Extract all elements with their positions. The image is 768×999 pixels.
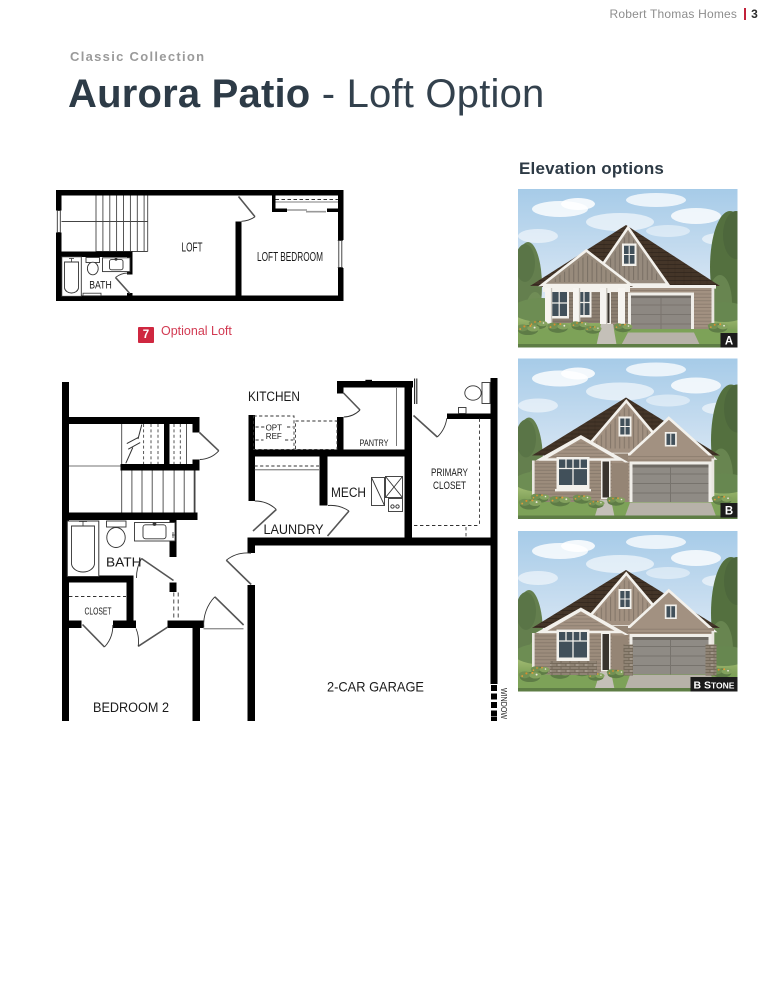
- svg-text:LAUNDRY: LAUNDRY: [264, 522, 324, 537]
- svg-text:CLOSET: CLOSET: [433, 480, 466, 492]
- svg-text:LOFT: LOFT: [182, 241, 203, 255]
- svg-text:A: A: [725, 336, 733, 348]
- svg-text:WINDOW: WINDOW: [499, 688, 509, 719]
- svg-text:LOFT BEDROOM: LOFT BEDROOM: [257, 250, 323, 264]
- svg-text:B: B: [725, 506, 733, 518]
- svg-text:2-CAR GARAGE: 2-CAR GARAGE: [327, 679, 424, 695]
- svg-text:PANTRY: PANTRY: [360, 438, 389, 449]
- svg-text:PRIMARY: PRIMARY: [431, 467, 468, 479]
- svg-text:BATH: BATH: [106, 555, 142, 570]
- svg-text:BATH: BATH: [89, 280, 112, 292]
- svg-text:CLOSET: CLOSET: [85, 607, 112, 618]
- svg-text:KITCHEN: KITCHEN: [248, 389, 300, 404]
- svg-text:MECH: MECH: [331, 485, 366, 500]
- svg-text:BEDROOM 2: BEDROOM 2: [93, 700, 169, 715]
- svg-text:B STONE: B STONE: [694, 680, 735, 692]
- svg-text:REF: REF: [266, 432, 282, 441]
